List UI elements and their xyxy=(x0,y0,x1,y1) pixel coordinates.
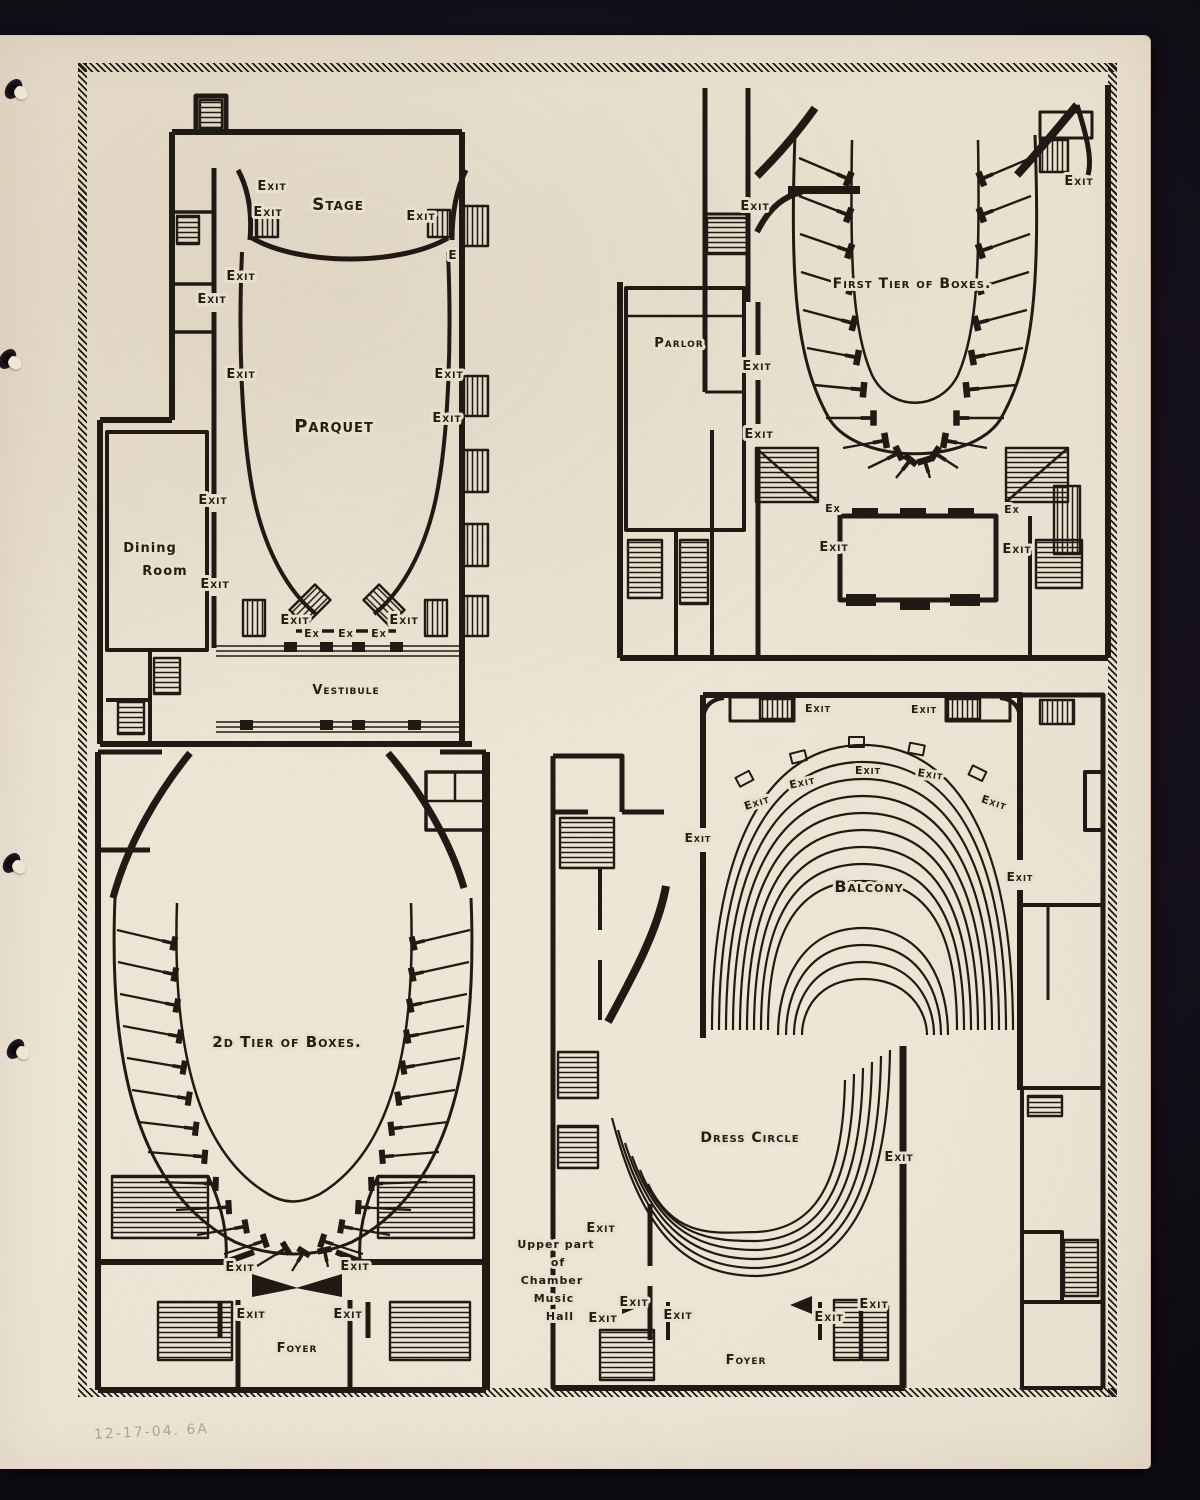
plan-label: Exit xyxy=(333,1307,362,1322)
plan-label: Exit xyxy=(280,613,309,628)
plan-label: Upper part xyxy=(517,1238,594,1251)
plan-label: Exit xyxy=(859,1297,888,1312)
plan-label: Exit xyxy=(389,613,418,628)
proscenium-curves xyxy=(757,105,1092,232)
plan-label: Exit xyxy=(198,493,227,508)
plan-label: Exit xyxy=(855,764,881,777)
plan-label: Exit xyxy=(588,1311,617,1326)
plan-label: Hall xyxy=(546,1310,574,1323)
plan-label: Exit xyxy=(911,703,937,716)
plan-label: Exit xyxy=(257,179,286,194)
plan-label: Vestibule xyxy=(312,683,379,698)
plan-label: Parquet xyxy=(294,416,374,437)
plan-label: Dress Circle xyxy=(700,1130,799,1146)
second-tier-walls xyxy=(98,752,486,1390)
plan-label: Exit xyxy=(236,1307,265,1322)
plan-label: Exit xyxy=(805,702,831,715)
plan-label: 2d Tier of Boxes. xyxy=(212,1033,361,1051)
plan-label: Exit xyxy=(740,199,769,214)
plan-label: Foyer xyxy=(726,1353,767,1368)
plan-label: Exit xyxy=(200,577,229,592)
plan-label: E xyxy=(448,248,457,262)
plan-label: Stage xyxy=(312,195,364,215)
plan-label: Exit xyxy=(253,205,282,220)
plan-label: Exit xyxy=(340,1259,369,1274)
plan-label: of xyxy=(551,1256,565,1269)
plan-label: Exit xyxy=(619,1295,648,1310)
plan-label: First Tier of Boxes. xyxy=(833,276,992,292)
plan-label: Exit xyxy=(742,359,771,374)
second-tier-labels: 2d Tier of Boxes.FoyerExitExitExitExit xyxy=(212,1033,369,1356)
plan-label: Exit xyxy=(917,766,945,783)
plan-label: Ex xyxy=(338,627,354,640)
boxes-horseshoe xyxy=(793,135,1036,454)
plan-label: Ex xyxy=(825,502,841,515)
box-dividers xyxy=(799,158,1031,478)
second-tier-plan: 2d Tier of Boxes.FoyerExitExitExitExit xyxy=(98,752,486,1390)
plan-label: Exit xyxy=(226,367,255,382)
plan-label: Exit xyxy=(1007,870,1034,884)
plan-label: Exit xyxy=(884,1150,913,1165)
second-tier-foyer xyxy=(98,1176,486,1390)
plan-label: Exit xyxy=(788,774,816,792)
right-corridor-rooms xyxy=(1022,695,1103,1388)
plan-label: Exit xyxy=(225,1260,254,1275)
plan-label: Exit xyxy=(685,831,712,845)
plan-label: Dining xyxy=(123,541,177,556)
plan-label: Parlor xyxy=(654,336,703,351)
plan-label: Exit xyxy=(226,269,255,284)
plan-label: Balcony xyxy=(834,877,903,896)
plan-label: Exit xyxy=(406,209,435,224)
dress-circle-arcs xyxy=(612,1050,890,1276)
plan-label: Ex xyxy=(1004,503,1020,516)
plan-label: Ex xyxy=(371,627,387,640)
floor-plans-svg: StageParquetDiningRoomVestibuleExitExitE… xyxy=(0,0,1200,1500)
plan-label: Exit xyxy=(819,540,848,555)
balcony-plan: BalconyDress CircleFoyerUpper partofCham… xyxy=(517,695,1103,1388)
plan-label: Music xyxy=(534,1292,575,1305)
plan-label: Exit xyxy=(1064,174,1093,189)
plan-label: Ex xyxy=(304,627,320,640)
plan-label: Exit xyxy=(980,792,1009,812)
photograph-background: 12-17-04. 6A xyxy=(0,0,1200,1500)
plan-label: Room xyxy=(142,564,187,579)
right-stairwells xyxy=(464,206,488,636)
plan-label: Exit xyxy=(744,427,773,442)
plan-label: Exit xyxy=(434,367,463,382)
main-floor-plan: StageParquetDiningRoomVestibuleExitExitE… xyxy=(100,96,488,744)
first-tier-plan: First Tier of Boxes.ParlorExitExitExitEx… xyxy=(620,85,1108,658)
plan-label: Exit xyxy=(197,292,226,307)
plan-label: Exit xyxy=(814,1310,843,1325)
plan-label: Exit xyxy=(1002,542,1031,557)
plan-label: Exit xyxy=(663,1308,692,1323)
plan-label: Chamber xyxy=(521,1274,584,1287)
plan-label: Exit xyxy=(586,1221,615,1236)
plan-label: Foyer xyxy=(277,1341,318,1356)
plan-label: Exit xyxy=(432,411,461,426)
